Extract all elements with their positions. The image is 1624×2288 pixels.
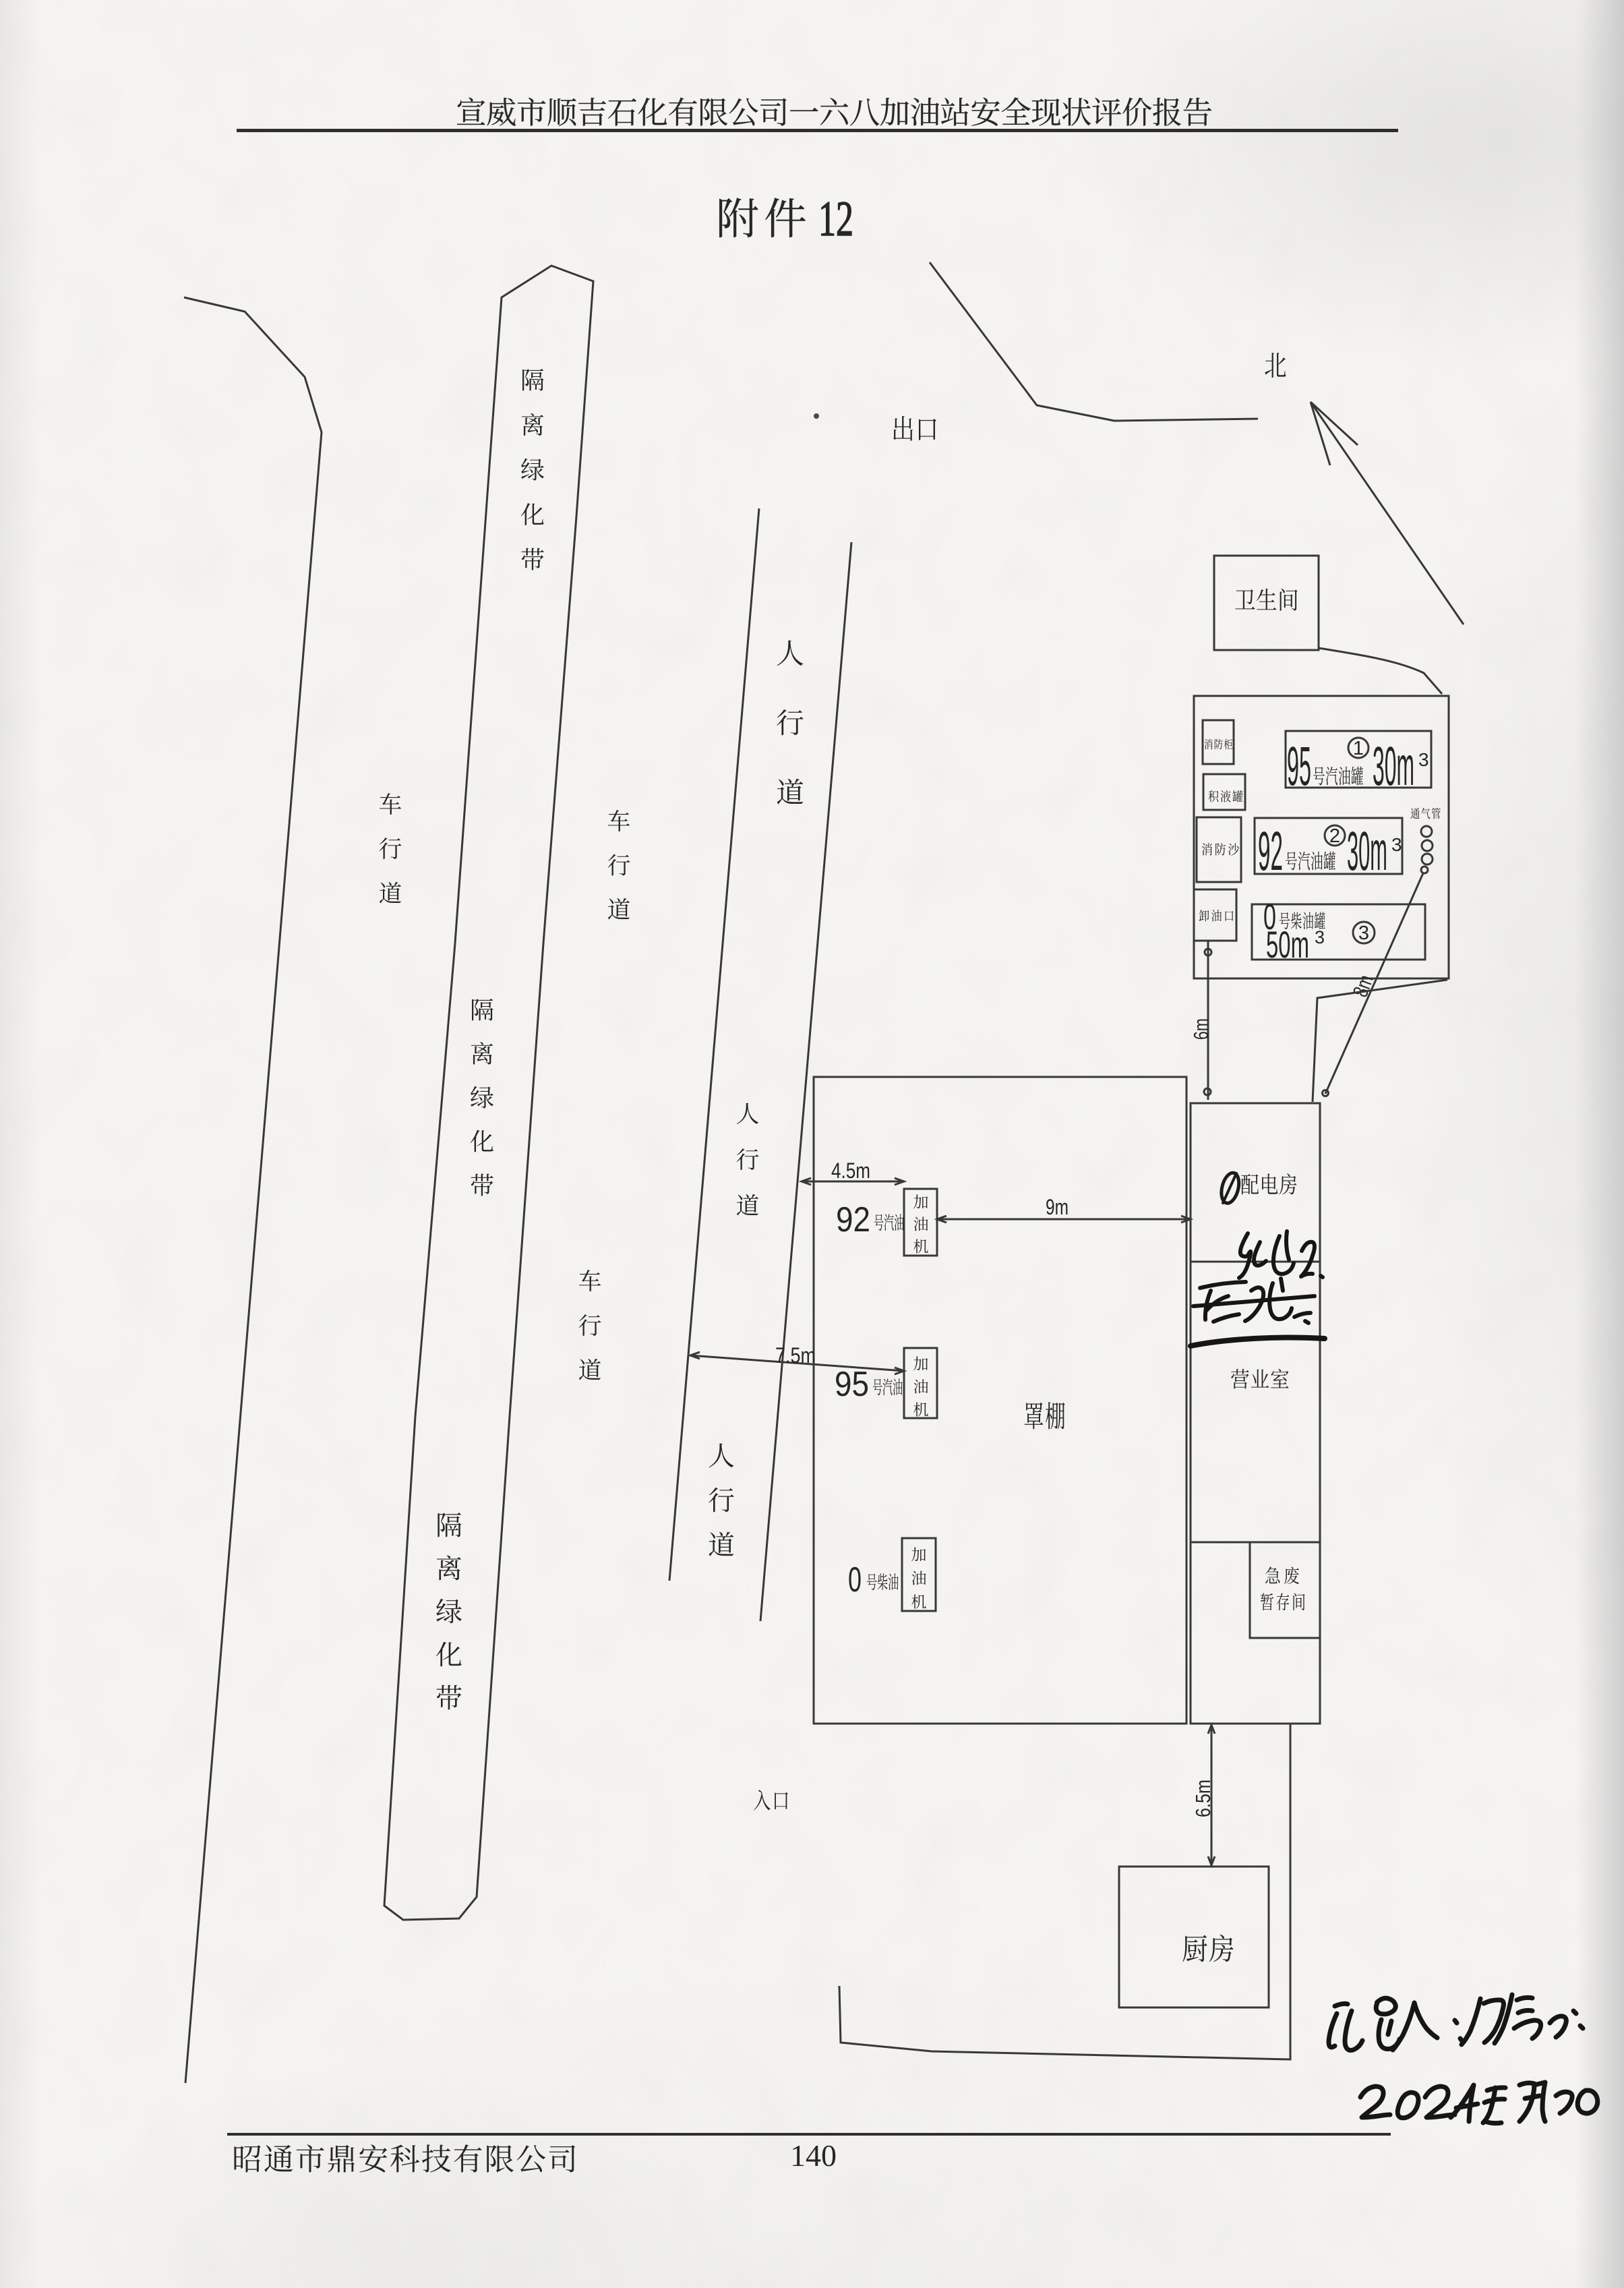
svg-text:2: 2 [1329,825,1340,847]
svg-text:12: 12 [818,192,853,247]
svg-text:30m: 30m [1347,821,1387,882]
svg-text:3: 3 [1358,922,1369,944]
svg-text:3: 3 [1315,927,1325,947]
svg-text:6.5m: 6.5m [1191,1780,1215,1817]
svg-text:95: 95 [835,1365,869,1404]
svg-text:1: 1 [1353,738,1364,759]
svg-text:92: 92 [1258,821,1283,882]
svg-text:0: 0 [848,1560,862,1600]
svg-text:9m: 9m [1046,1195,1069,1219]
svg-text:30m: 30m [1373,736,1414,797]
svg-text:92: 92 [836,1200,870,1239]
svg-text:3: 3 [1418,749,1429,770]
svg-text:3: 3 [1391,834,1402,855]
svg-text:4.5m: 4.5m [831,1158,870,1183]
svg-text:7.5m: 7.5m [775,1343,816,1368]
svg-text:6m: 6m [1189,1018,1213,1040]
svg-text:95: 95 [1287,736,1311,797]
svg-text:140: 140 [790,2138,837,2173]
svg-text:50m: 50m [1266,923,1309,966]
